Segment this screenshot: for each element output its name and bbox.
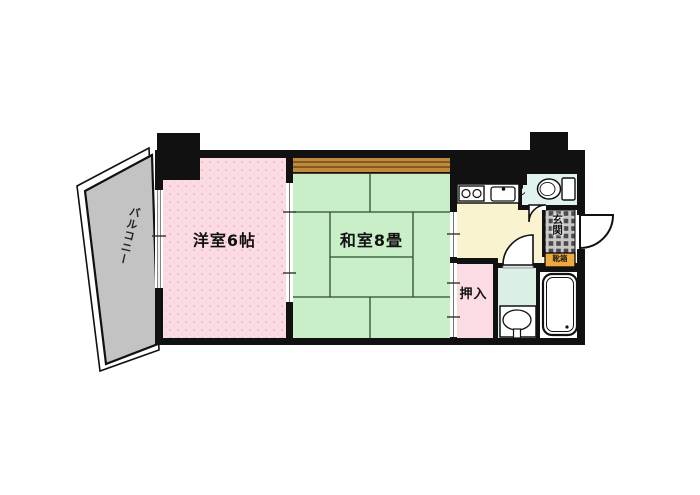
shoe-box-label: 靴箱 bbox=[545, 255, 575, 264]
toilet-fixture bbox=[538, 178, 576, 200]
closet-label: 押入 bbox=[450, 288, 497, 303]
faucet bbox=[502, 187, 506, 191]
toilet-label: トイレ bbox=[517, 174, 526, 208]
washbasin bbox=[500, 306, 536, 338]
column-top-left bbox=[157, 133, 200, 180]
wood-strip bbox=[293, 157, 450, 174]
entrance-door bbox=[580, 215, 613, 248]
japanese-room-floor bbox=[293, 174, 450, 338]
bathtub bbox=[543, 274, 577, 335]
floor-plan: 洋室6帖 和室8畳 押入 トイレ 玄関 靴箱 バルコニー bbox=[0, 0, 700, 495]
western-room-label: 洋室6帖 bbox=[163, 232, 286, 250]
column-top-right bbox=[530, 132, 568, 158]
japanese-room-label: 和室8畳 bbox=[293, 232, 450, 250]
entrance-label: 玄関 bbox=[551, 214, 563, 254]
kitchen-counter bbox=[457, 184, 519, 203]
